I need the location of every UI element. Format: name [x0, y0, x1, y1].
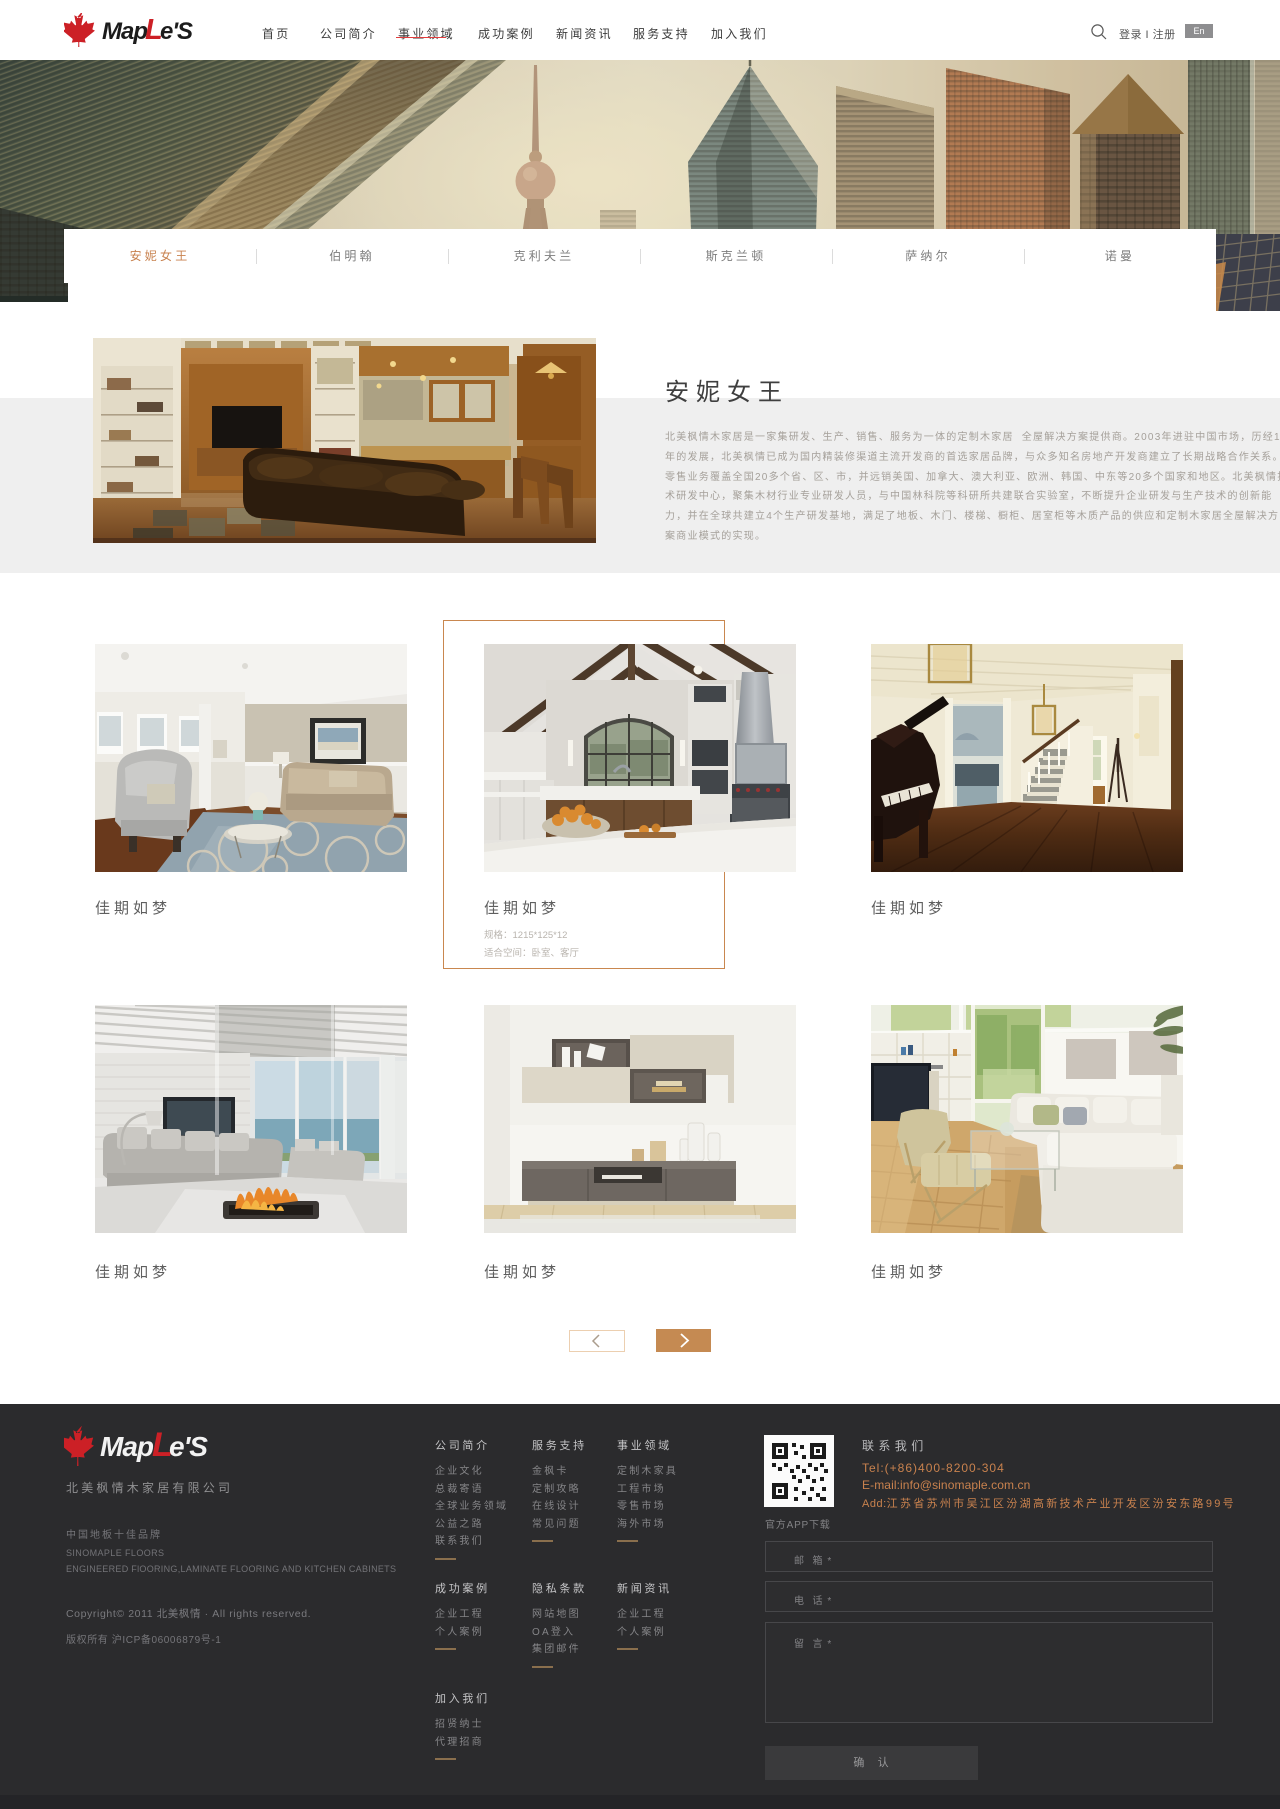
svg-text:Map: Map: [100, 1431, 154, 1462]
svg-text:e'S: e'S: [160, 18, 193, 45]
svg-text:e'S: e'S: [169, 1431, 208, 1462]
svg-text:Map: Map: [102, 18, 147, 45]
